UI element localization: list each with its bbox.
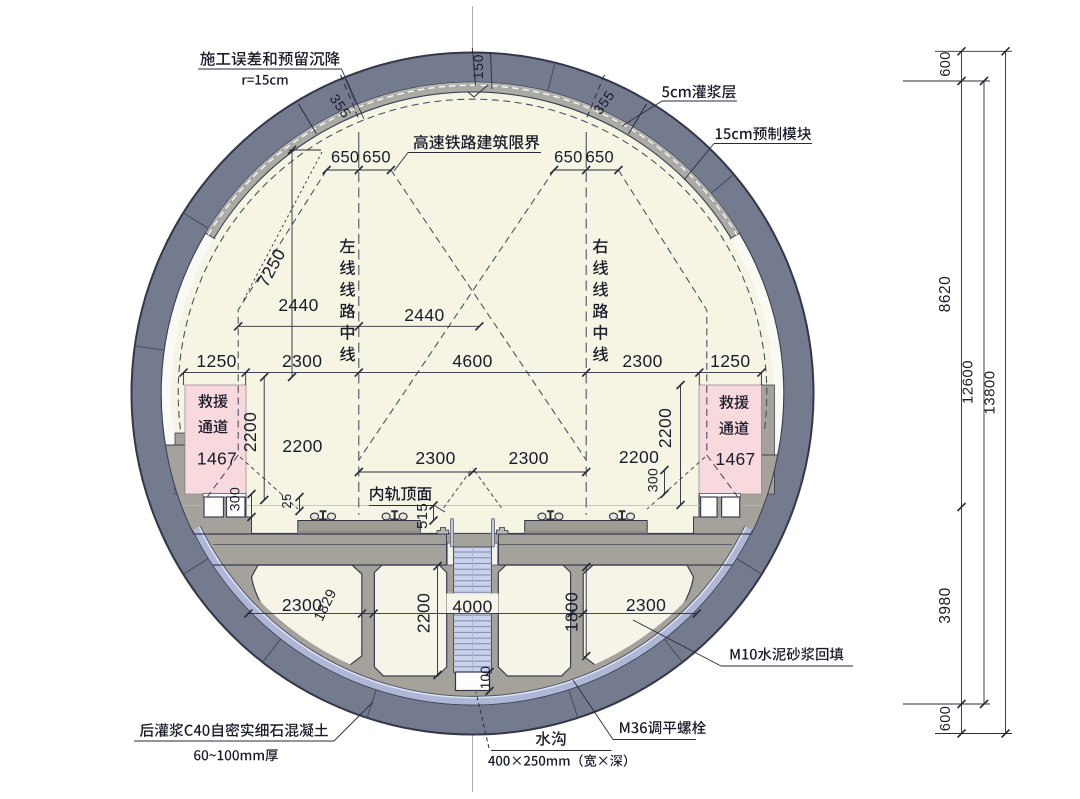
svg-text:2200: 2200	[240, 412, 260, 452]
svg-text:2200: 2200	[619, 447, 659, 467]
svg-text:2300: 2300	[415, 448, 455, 468]
svg-text:4600: 4600	[452, 351, 492, 371]
svg-text:8620: 8620	[937, 276, 954, 312]
svg-text:25: 25	[279, 493, 294, 508]
svg-text:13800: 13800	[982, 370, 999, 414]
svg-text:300: 300	[227, 487, 243, 511]
svg-text:2200: 2200	[655, 408, 675, 448]
svg-text:1250: 1250	[710, 351, 750, 371]
svg-text:1467: 1467	[715, 449, 755, 469]
svg-text:2200: 2200	[282, 436, 322, 456]
svg-text:1250: 1250	[196, 351, 236, 371]
svg-text:2300: 2300	[509, 448, 549, 468]
svg-text:150: 150	[471, 54, 486, 79]
svg-text:300: 300	[645, 468, 661, 492]
svg-text:2300: 2300	[626, 595, 666, 615]
svg-text:600: 600	[938, 51, 954, 76]
svg-text:650: 650	[586, 149, 614, 167]
svg-text:650: 650	[331, 149, 359, 167]
svg-text:2300: 2300	[282, 351, 322, 371]
svg-text:2300: 2300	[622, 351, 662, 371]
svg-text:650: 650	[362, 149, 390, 167]
svg-text:2440: 2440	[278, 295, 318, 315]
svg-text:4000: 4000	[452, 597, 492, 617]
svg-text:650: 650	[554, 149, 582, 167]
svg-text:12600: 12600	[960, 360, 977, 404]
svg-text:2200: 2200	[414, 593, 434, 633]
svg-text:3980: 3980	[937, 587, 954, 623]
svg-text:515: 515	[414, 503, 431, 529]
svg-text:2440: 2440	[404, 305, 444, 325]
svg-text:1467: 1467	[197, 449, 237, 469]
svg-text:100: 100	[478, 666, 493, 690]
svg-text:1800: 1800	[562, 592, 582, 632]
svg-text:600: 600	[938, 706, 954, 731]
